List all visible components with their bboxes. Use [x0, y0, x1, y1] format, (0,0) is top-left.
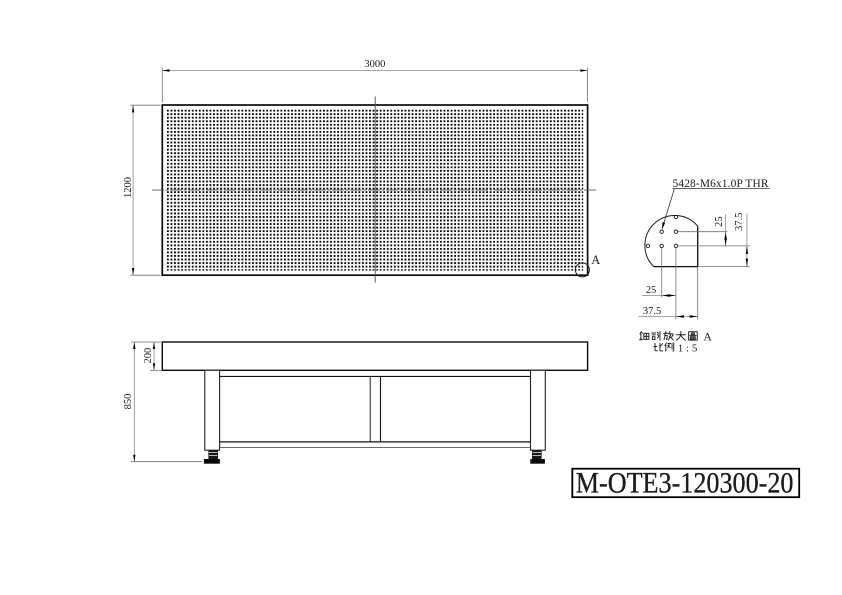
svg-text:37.5: 37.5 [734, 213, 745, 231]
svg-text:A: A [703, 329, 712, 343]
svg-text:850: 850 [123, 394, 134, 410]
svg-text:M-OTE3-120300-20: M-OTE3-120300-20 [576, 467, 794, 500]
svg-text:37.5: 37.5 [643, 306, 661, 317]
svg-text:25: 25 [646, 285, 657, 296]
svg-text:200: 200 [143, 348, 154, 364]
svg-text:A: A [591, 253, 600, 267]
svg-text:3000: 3000 [364, 59, 385, 70]
svg-text:1 : 5: 1 : 5 [678, 342, 698, 354]
svg-text:1200: 1200 [123, 177, 134, 198]
svg-text:25: 25 [714, 217, 725, 228]
